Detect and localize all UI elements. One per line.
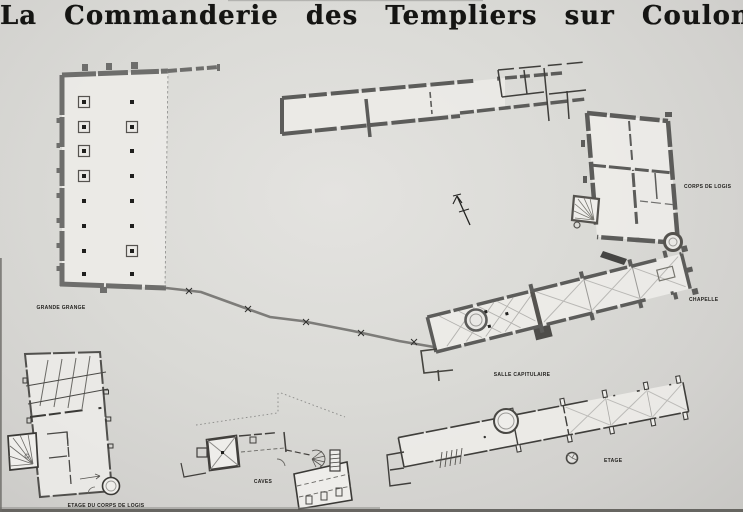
caves-plan [181,432,352,509]
scanned-plan-sheet: La Commanderie des Templiers sur Coulomm… [0,0,743,512]
label-etage: ETAGE [604,458,623,464]
grande-grange-plan [57,62,221,293]
plan-drawing: GRANDE GRANGE CORPS DE LOGIS CHAPELLE SA… [0,0,743,512]
caves-dotted-projection [196,393,345,425]
spiral-stair [572,196,599,228]
round-tower [103,478,120,495]
chapel-west-annex [421,349,453,381]
plan-title: La Commanderie des Templiers sur Coulomm… [0,1,743,31]
corps-de-logis-plan [572,112,682,251]
courtyard-wall [166,288,434,425]
stable-range-plan [282,62,586,137]
range-east-rooms [498,62,586,121]
north-arrow-icon [453,194,470,225]
corner-tower [665,234,682,251]
cave-ladder-stair [330,450,340,471]
chapel-turret [466,310,487,331]
cave-spiral-stair [312,450,325,467]
label-caves: CAVES [254,479,273,485]
label-corps-de-logis: CORPS DE LOGIS [684,184,732,190]
etage-corps-de-logis-plan [8,352,120,497]
chapelle-plan [426,245,701,364]
label-grande-grange: GRANDE GRANGE [37,305,86,311]
wall-fragment [600,251,627,265]
label-chapelle: CHAPELLE [689,297,719,303]
square-stair-tower [8,433,38,470]
label-salle-capitulaire: SALLE CAPITULAIRE [494,372,551,378]
